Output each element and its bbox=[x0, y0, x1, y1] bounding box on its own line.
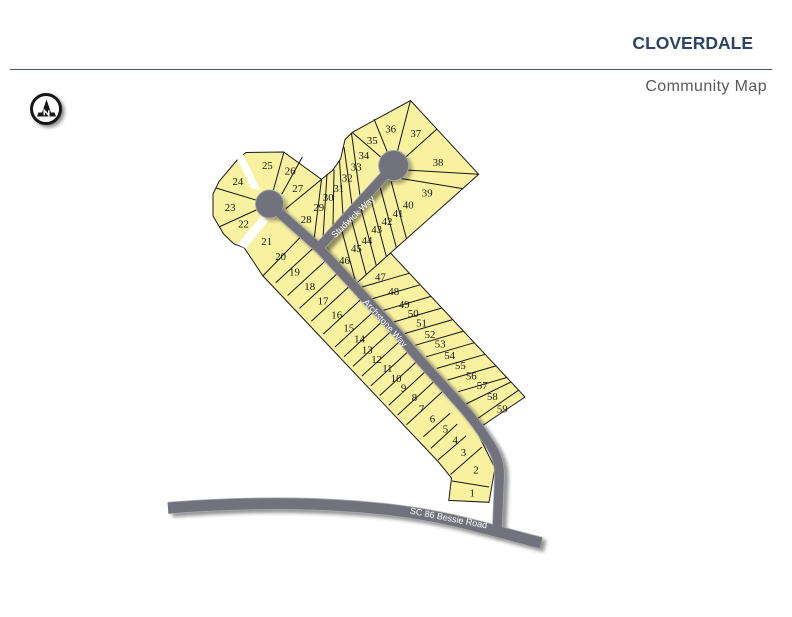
svg-text:11: 11 bbox=[382, 363, 392, 375]
svg-text:32: 32 bbox=[342, 173, 353, 185]
svg-text:3: 3 bbox=[461, 447, 466, 459]
svg-text:4: 4 bbox=[452, 435, 458, 447]
svg-text:7: 7 bbox=[419, 404, 425, 416]
svg-text:46: 46 bbox=[339, 255, 350, 267]
svg-text:54: 54 bbox=[444, 350, 455, 362]
svg-text:40: 40 bbox=[403, 199, 414, 211]
svg-text:36: 36 bbox=[385, 124, 396, 136]
svg-text:13: 13 bbox=[362, 345, 373, 357]
svg-text:59: 59 bbox=[497, 404, 508, 416]
svg-text:55: 55 bbox=[455, 360, 466, 372]
svg-text:17: 17 bbox=[318, 295, 329, 307]
svg-text:31: 31 bbox=[333, 183, 344, 195]
svg-text:42: 42 bbox=[382, 216, 393, 228]
svg-text:18: 18 bbox=[304, 281, 315, 293]
svg-text:45: 45 bbox=[351, 243, 362, 255]
svg-text:53: 53 bbox=[435, 338, 446, 350]
svg-text:44: 44 bbox=[362, 235, 373, 247]
svg-text:26: 26 bbox=[285, 166, 296, 178]
svg-text:23: 23 bbox=[225, 202, 236, 214]
svg-text:58: 58 bbox=[487, 391, 498, 403]
svg-text:35: 35 bbox=[367, 135, 378, 147]
svg-text:43: 43 bbox=[371, 224, 382, 236]
svg-text:30: 30 bbox=[323, 192, 334, 204]
svg-text:28: 28 bbox=[301, 214, 312, 226]
svg-text:22: 22 bbox=[238, 218, 249, 230]
svg-text:19: 19 bbox=[289, 266, 300, 278]
svg-text:24: 24 bbox=[233, 176, 244, 188]
svg-text:5: 5 bbox=[443, 424, 448, 436]
svg-text:27: 27 bbox=[292, 183, 303, 195]
svg-text:34: 34 bbox=[359, 150, 370, 162]
svg-text:52: 52 bbox=[425, 329, 436, 341]
svg-text:1: 1 bbox=[469, 487, 474, 499]
svg-text:33: 33 bbox=[351, 162, 362, 174]
svg-text:12: 12 bbox=[371, 354, 382, 366]
svg-text:37: 37 bbox=[410, 128, 421, 140]
svg-text:41: 41 bbox=[393, 208, 404, 220]
svg-text:6: 6 bbox=[430, 413, 436, 425]
svg-text:16: 16 bbox=[331, 309, 342, 321]
svg-text:56: 56 bbox=[466, 370, 477, 382]
svg-text:39: 39 bbox=[422, 187, 433, 199]
svg-text:15: 15 bbox=[343, 323, 354, 335]
svg-text:38: 38 bbox=[433, 157, 444, 169]
svg-text:14: 14 bbox=[354, 334, 365, 346]
svg-text:21: 21 bbox=[261, 236, 272, 248]
svg-text:51: 51 bbox=[416, 318, 427, 330]
svg-text:9: 9 bbox=[401, 383, 406, 395]
svg-text:2: 2 bbox=[473, 465, 478, 477]
svg-text:48: 48 bbox=[388, 286, 399, 298]
svg-text:25: 25 bbox=[262, 160, 273, 172]
svg-text:8: 8 bbox=[412, 392, 417, 404]
svg-text:20: 20 bbox=[275, 251, 286, 263]
svg-text:47: 47 bbox=[375, 271, 386, 283]
